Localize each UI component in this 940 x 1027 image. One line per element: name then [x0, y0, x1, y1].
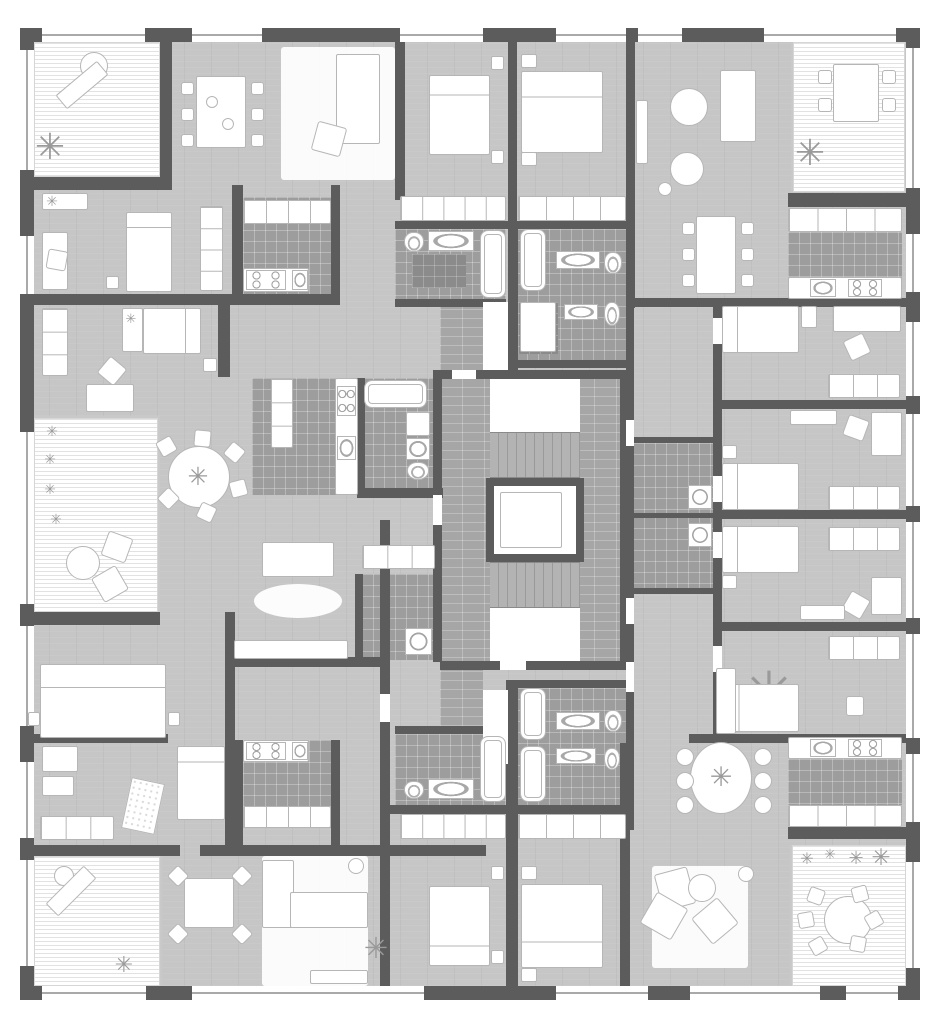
kitchen-sink [292, 270, 308, 290]
studio-bed [722, 306, 799, 353]
washing-machine [688, 485, 712, 509]
nightstand [168, 712, 180, 726]
nightstand [106, 276, 119, 289]
washbasin [406, 438, 430, 460]
closet-nook [483, 302, 508, 370]
washing-machine [688, 523, 712, 547]
wall [160, 42, 172, 190]
nightstand [722, 575, 737, 589]
chair [882, 98, 896, 112]
wardrobe [828, 527, 900, 551]
wall-segment [906, 968, 920, 1000]
patio-table [66, 546, 100, 580]
cooktop [848, 739, 882, 757]
chair [797, 911, 816, 930]
desk [833, 306, 901, 332]
table-plant: ✳ [184, 462, 212, 490]
nightstand [491, 950, 504, 964]
desk [42, 746, 78, 772]
chair [882, 70, 896, 84]
chair [251, 82, 264, 95]
double-bed [429, 75, 490, 155]
bathtub [520, 746, 546, 802]
wall [508, 221, 518, 370]
plant: ✳ [798, 850, 816, 868]
place-setting [222, 118, 234, 130]
wall-segment [483, 28, 556, 42]
chair [181, 82, 194, 95]
wall-segment [424, 986, 556, 1000]
chair [251, 134, 264, 147]
wall [232, 185, 243, 297]
chair [676, 796, 694, 814]
wardrobe [828, 486, 900, 510]
wall-segment [313, 28, 400, 42]
wall [357, 488, 443, 498]
chair [741, 248, 754, 261]
door-opening [626, 420, 634, 446]
chair [251, 108, 264, 121]
elevator-car [500, 492, 562, 548]
kitchen-bottom-right [788, 759, 902, 805]
wall [20, 845, 180, 856]
entry-hall-bottom [440, 662, 483, 732]
nightstand [801, 306, 817, 328]
wall-segment [20, 390, 34, 432]
patio-table [833, 64, 879, 122]
wall [516, 680, 626, 688]
wall [20, 612, 160, 625]
desk [871, 412, 902, 456]
wall [380, 520, 390, 986]
single-bed [177, 746, 225, 820]
entry-hall-top [440, 300, 483, 378]
wall-segment [145, 28, 192, 42]
toilet [407, 462, 429, 480]
chair [754, 796, 772, 814]
sofa [262, 542, 334, 577]
nightstand [203, 358, 217, 372]
studio-bed [722, 526, 799, 573]
nightstand [28, 712, 40, 726]
wardrobe [828, 636, 900, 660]
plant: ✳ [44, 424, 60, 440]
floor-plan: ✳✳✳✳✳✳✳✳✳✳✳✳✳✳✳✳✳ [0, 0, 940, 1027]
plant: ✳ [868, 845, 894, 871]
cooktop [848, 279, 882, 297]
nightstand [521, 968, 537, 982]
door-opening [713, 532, 722, 558]
kitchen-sink [292, 742, 308, 760]
wall [620, 743, 630, 986]
armchair [670, 88, 708, 126]
plant: ✳ [48, 512, 64, 528]
kitchen-counter [788, 737, 902, 759]
double-bed [40, 664, 166, 738]
kitchen-counter [788, 277, 902, 299]
chair [676, 748, 694, 766]
railing [34, 416, 158, 418]
wall-below-balcony-tl [20, 177, 160, 190]
wall-segment [906, 822, 920, 862]
shelf [800, 605, 845, 620]
floor-lamp [348, 858, 364, 874]
wall-segment [262, 28, 313, 42]
double-washbasin [428, 779, 474, 799]
wall-segment [20, 726, 34, 762]
bed [143, 308, 201, 354]
bench [234, 640, 348, 659]
door-opening [713, 318, 722, 344]
sofa [720, 70, 756, 142]
desk-chair [45, 248, 68, 271]
chair [181, 134, 194, 147]
stair-flight-lower [490, 562, 580, 608]
door-opening [626, 662, 634, 692]
balcony-bottom-left [34, 856, 160, 986]
studio-bed [722, 463, 799, 510]
hall-wardrobe [362, 545, 435, 569]
chair [682, 248, 695, 261]
wall [506, 805, 518, 986]
pod-wall [633, 437, 713, 443]
wall-segment [906, 188, 920, 234]
locker [716, 668, 736, 734]
wardrobe [828, 374, 900, 398]
bathtub [480, 736, 506, 802]
door-opening [500, 661, 526, 670]
chair [682, 222, 695, 235]
wardrobe [400, 196, 506, 221]
plant: ✳ [112, 954, 136, 978]
washing-machine [405, 628, 432, 655]
double-washbasin [428, 231, 474, 251]
sideboard [310, 970, 368, 984]
plant: ✳ [42, 482, 58, 498]
chair [818, 98, 832, 112]
stool [846, 696, 864, 716]
chair [754, 772, 772, 790]
kitchen-counter [243, 200, 331, 224]
bathtub [364, 380, 427, 408]
bathtub [520, 229, 546, 291]
shower-tray [406, 412, 430, 436]
wall [355, 574, 363, 660]
wardrobe [200, 206, 223, 291]
wall [331, 185, 340, 294]
kitchen-sink [337, 436, 356, 460]
wall-segment [906, 292, 920, 322]
stair-landing-bottom [490, 608, 580, 662]
wall [713, 622, 906, 631]
door-opening [433, 495, 442, 525]
shelf [790, 410, 837, 425]
chair [193, 429, 211, 447]
double-bed [521, 71, 603, 153]
shelf [636, 100, 648, 164]
nightstand [491, 866, 504, 880]
wall-segment [20, 296, 34, 392]
wall-segment [820, 986, 846, 1000]
kitchen-center-left [252, 378, 336, 495]
dining-table [696, 216, 736, 294]
wall [200, 845, 486, 856]
drawer-unit [42, 776, 74, 796]
toilet [404, 232, 424, 252]
wardrobe [42, 308, 68, 376]
bathtub [520, 688, 546, 740]
wall-segment [906, 738, 920, 754]
door-opening [452, 370, 476, 379]
wall-segment [648, 986, 690, 1000]
nightstand [521, 54, 537, 68]
kitchen-sink [810, 279, 836, 297]
plant: ✳ [124, 312, 138, 326]
chair [682, 274, 695, 287]
core-wall-bottom [440, 661, 630, 670]
stair-flight-upper [490, 432, 580, 478]
table-plant: ✳ [706, 762, 736, 792]
stair-landing-top [490, 378, 580, 432]
wall-segment [906, 28, 920, 48]
chair [849, 935, 868, 954]
wall [508, 42, 517, 221]
floor-lamp [658, 182, 672, 196]
door-opening [713, 476, 722, 502]
wall-above-balcony-br [788, 827, 906, 839]
dining-table [184, 878, 234, 928]
double-washbasin [556, 712, 600, 730]
wall-segment [626, 28, 638, 42]
wall [713, 510, 906, 519]
washbasin [564, 304, 598, 320]
nightstand [521, 866, 537, 880]
nightstand [722, 445, 737, 459]
kitchen-counter [788, 805, 902, 827]
wardrobe [40, 816, 114, 840]
wall [788, 193, 906, 207]
chair [181, 108, 194, 121]
kitchen-counter [243, 806, 331, 828]
desk [871, 577, 902, 615]
toilet [604, 302, 620, 326]
double-washbasin [556, 251, 600, 269]
nightstand [491, 150, 504, 164]
wardrobe [518, 814, 626, 839]
toilet [604, 252, 622, 274]
wall-segment [146, 986, 192, 1000]
pod-wall [633, 513, 713, 518]
cooktop [246, 742, 286, 760]
shower-a1 [412, 254, 466, 288]
chair [741, 222, 754, 235]
door-opening [380, 694, 390, 722]
bathtub [480, 230, 506, 298]
chair [741, 274, 754, 287]
plant: ✳ [790, 134, 830, 174]
washbasin [556, 748, 596, 764]
toilet [604, 748, 620, 770]
wall-segment [682, 28, 764, 42]
railing [160, 856, 162, 986]
shower-tray [520, 302, 556, 352]
wardrobe [518, 196, 626, 221]
wall [516, 360, 626, 368]
plant: ✳ [360, 932, 392, 964]
wall-segment [906, 396, 920, 414]
toilet [604, 710, 622, 732]
nightstand [491, 56, 504, 70]
cooktop [337, 386, 356, 416]
kitchen-counter [788, 208, 902, 232]
double-bed [429, 886, 490, 966]
plant: ✳ [30, 128, 70, 168]
wall [626, 42, 635, 308]
kitchen-top-right [788, 232, 902, 278]
cooktop [246, 270, 286, 290]
plant: ✳ [42, 452, 58, 468]
kitchen-sink [810, 739, 836, 757]
double-bed [521, 884, 603, 968]
oval-rug [254, 584, 342, 618]
plant: ✳ [44, 194, 60, 210]
door-opening [626, 598, 634, 624]
chair [676, 772, 694, 790]
sofa [290, 892, 368, 928]
wall [218, 305, 230, 377]
place-setting [206, 96, 218, 108]
chair [754, 748, 772, 766]
kitchen-counter [271, 378, 293, 448]
nightstand [521, 152, 537, 166]
wall-segment [20, 28, 34, 50]
wall-segment [906, 618, 920, 634]
wall [713, 400, 906, 409]
wall [395, 42, 405, 200]
wardrobe [400, 814, 506, 839]
desk [86, 384, 134, 412]
bed [126, 212, 172, 292]
reading-chair [670, 152, 704, 186]
chair [818, 70, 832, 84]
railing [790, 845, 792, 986]
wall [331, 740, 340, 856]
plant: ✳ [822, 847, 838, 863]
plant: ✳ [846, 849, 866, 869]
dining-table [196, 76, 246, 148]
floor-lamp [738, 866, 754, 882]
pod-wall [633, 588, 713, 594]
wall-segment [20, 966, 34, 1000]
pouf [688, 874, 716, 902]
wall [20, 294, 340, 305]
wall-segment [906, 506, 920, 522]
wall [233, 740, 243, 845]
toilet [404, 781, 424, 799]
